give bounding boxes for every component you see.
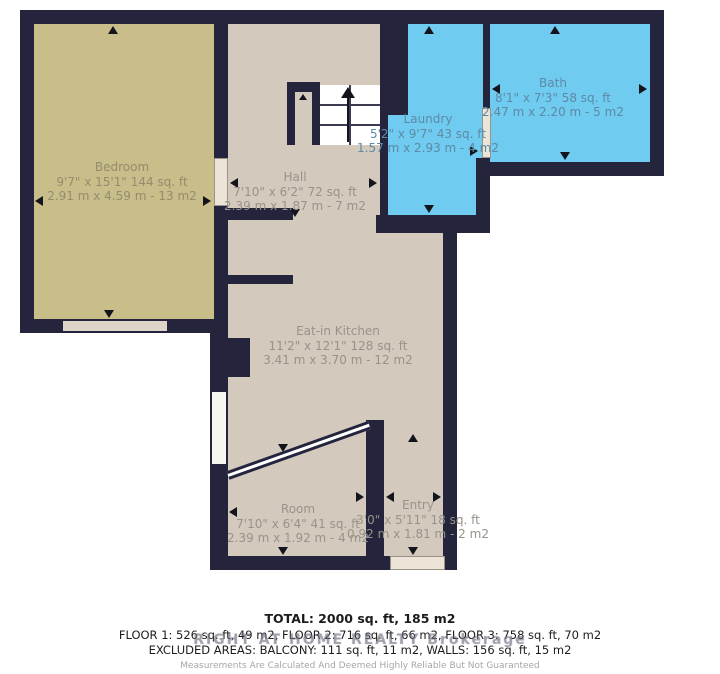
measure-arrow-icon (424, 26, 434, 34)
room-name: Laundry (357, 112, 499, 127)
room-label-entry: Entry 3'0" x 5'11" 18 sq. ft 0.92 m x 1.… (347, 498, 489, 542)
measure-arrow-icon (408, 434, 418, 442)
floor-plan: Bedroom 9'7" x 15'1" 144 sq. ft 2.91 m x… (0, 0, 720, 674)
room-name: Bedroom (47, 160, 197, 175)
measure-arrow-icon (550, 26, 560, 34)
room-label-hall: Hall 7'10" x 6'2" 72 sq. ft 2.39 m x 1.8… (224, 170, 366, 214)
watermark: RIGHT AT HOME REALTY Brokerage (193, 632, 527, 648)
room-dims-ft: 5'2" x 9'7" 43 sq. ft (357, 127, 499, 142)
wall (20, 319, 63, 333)
wall (476, 162, 664, 176)
measure-arrow-icon (278, 444, 288, 452)
measure-arrow-icon (278, 547, 288, 555)
room-label-laundry: Laundry 5'2" x 9'7" 43 sq. ft 1.57 m x 2… (357, 112, 499, 156)
room-name: Entry (347, 498, 489, 513)
arrow-up-icon (299, 94, 307, 100)
wall (210, 556, 390, 570)
measure-arrow-icon (408, 547, 418, 555)
room-dims-m: 1.57 m x 2.93 m - 4 m2 (357, 141, 499, 156)
measure-arrow-icon (104, 310, 114, 318)
wall (380, 10, 408, 115)
room-dims-m: 2.39 m x 1.87 m - 7 m2 (224, 199, 366, 214)
room-name: Bath (482, 76, 624, 91)
measure-arrow-icon (203, 196, 211, 206)
measure-arrow-icon (639, 84, 647, 94)
wall (167, 319, 228, 333)
wall (228, 275, 293, 284)
room-label-kitchen: Eat-in Kitchen 11'2" x 12'1" 128 sq. ft … (263, 324, 413, 368)
room-label-bedroom: Bedroom 9'7" x 15'1" 144 sq. ft 2.91 m x… (47, 160, 197, 204)
room-dims-ft: 11'2" x 12'1" 128 sq. ft (263, 339, 413, 354)
room-dims-ft: 9'7" x 15'1" 144 sq. ft (47, 175, 197, 190)
room-dims-m: 0.92 m x 1.81 m - 2 m2 (347, 527, 489, 542)
room-name: Eat-in Kitchen (263, 324, 413, 339)
measure-arrow-icon (560, 152, 570, 160)
measure-arrow-icon (35, 196, 43, 206)
wall (214, 206, 228, 333)
measure-arrow-icon (424, 205, 434, 213)
wall (214, 10, 228, 158)
door-opening (390, 556, 445, 570)
wall (20, 10, 664, 24)
room-dims-ft: 8'1" x 7'3" 58 sq. ft (482, 91, 624, 106)
laundry-area-upper (406, 24, 483, 115)
total-line: TOTAL: 2000 sq. ft, 185 m2 (0, 611, 720, 626)
stair-direction-arrow (347, 96, 349, 142)
arrow-up-icon (341, 87, 355, 98)
wall (376, 215, 490, 233)
room-dims-ft: 7'10" x 6'2" 72 sq. ft (224, 185, 366, 200)
wall (20, 10, 34, 333)
room-label-bath: Bath 8'1" x 7'3" 58 sq. ft 2.47 m x 2.20… (482, 76, 624, 120)
wall (650, 10, 664, 176)
window (63, 319, 167, 333)
chimney-block (224, 338, 250, 377)
room-dims-m: 3.41 m x 3.70 m - 12 m2 (263, 353, 413, 368)
room-dims-ft: 3'0" x 5'11" 18 sq. ft (347, 513, 489, 528)
room-dims-m: 2.47 m x 2.20 m - 5 m2 (482, 105, 624, 120)
wall (210, 464, 228, 570)
room-name: Hall (224, 170, 366, 185)
measure-arrow-icon (108, 26, 118, 34)
window (210, 392, 228, 464)
disclaimer-line: Measurements Are Calculated And Deemed H… (0, 661, 720, 671)
room-dims-m: 2.91 m x 4.59 m - 13 m2 (47, 189, 197, 204)
measure-arrow-icon (369, 178, 377, 188)
